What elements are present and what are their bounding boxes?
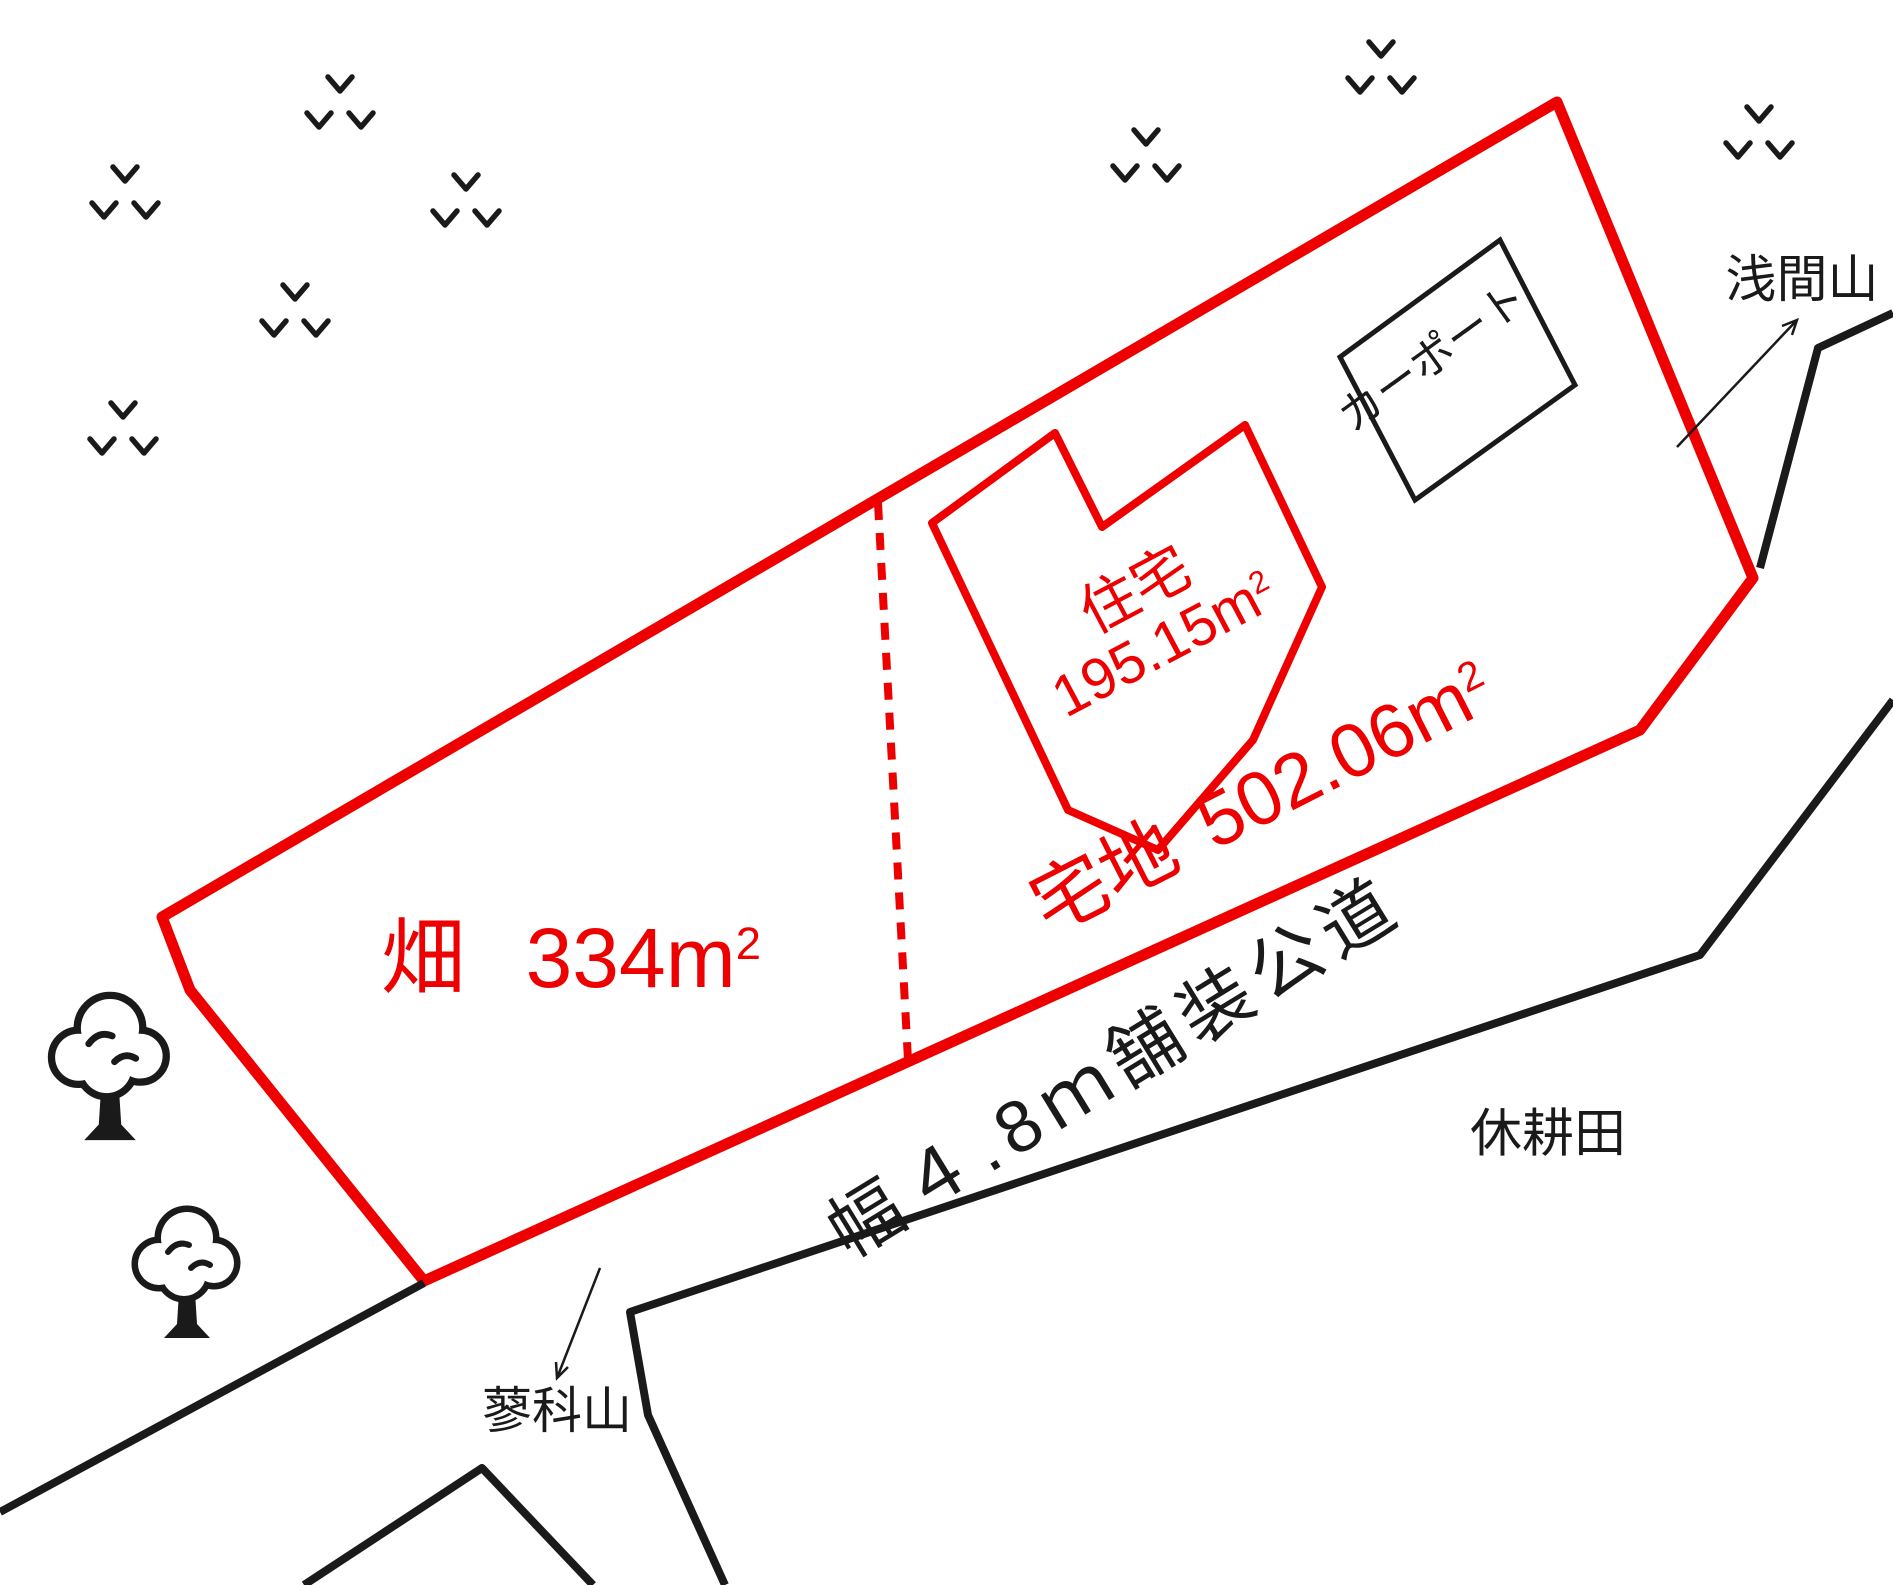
tree-icon [135, 1209, 237, 1338]
field-symbol [1348, 42, 1414, 92]
field-area-label: 畑334m2 [381, 914, 761, 1002]
field-symbol [1113, 130, 1179, 180]
mt-asama-label: 浅間山 [1725, 253, 1878, 307]
tateshina-arrow [556, 1268, 600, 1378]
property-boundary-outline [162, 102, 1753, 1281]
field-symbol [92, 167, 158, 217]
field-symbol [1726, 107, 1792, 157]
tree-icon [52, 996, 166, 1140]
lot-divider-dashed-line [878, 503, 908, 1060]
field-symbol [307, 77, 373, 127]
fallow-field-label: 休耕田 [1470, 1108, 1626, 1163]
road-edge-left-lower [304, 1468, 593, 1585]
field-symbol [433, 175, 499, 225]
field-symbol [262, 285, 328, 335]
plot-diagram: 畑334m2 宅地502.06m2 住宅 195.15m2 カーポート 幅４.8… [0, 0, 1893, 1585]
mt-tateshina-label: 蓼科山 [482, 1385, 632, 1438]
field-symbol [90, 403, 156, 453]
road-edge-right-upper [1760, 313, 1893, 568]
asama-arrow [1677, 320, 1797, 447]
road-edge-left-upper [0, 1283, 424, 1512]
diagram-linework [0, 0, 1893, 1585]
